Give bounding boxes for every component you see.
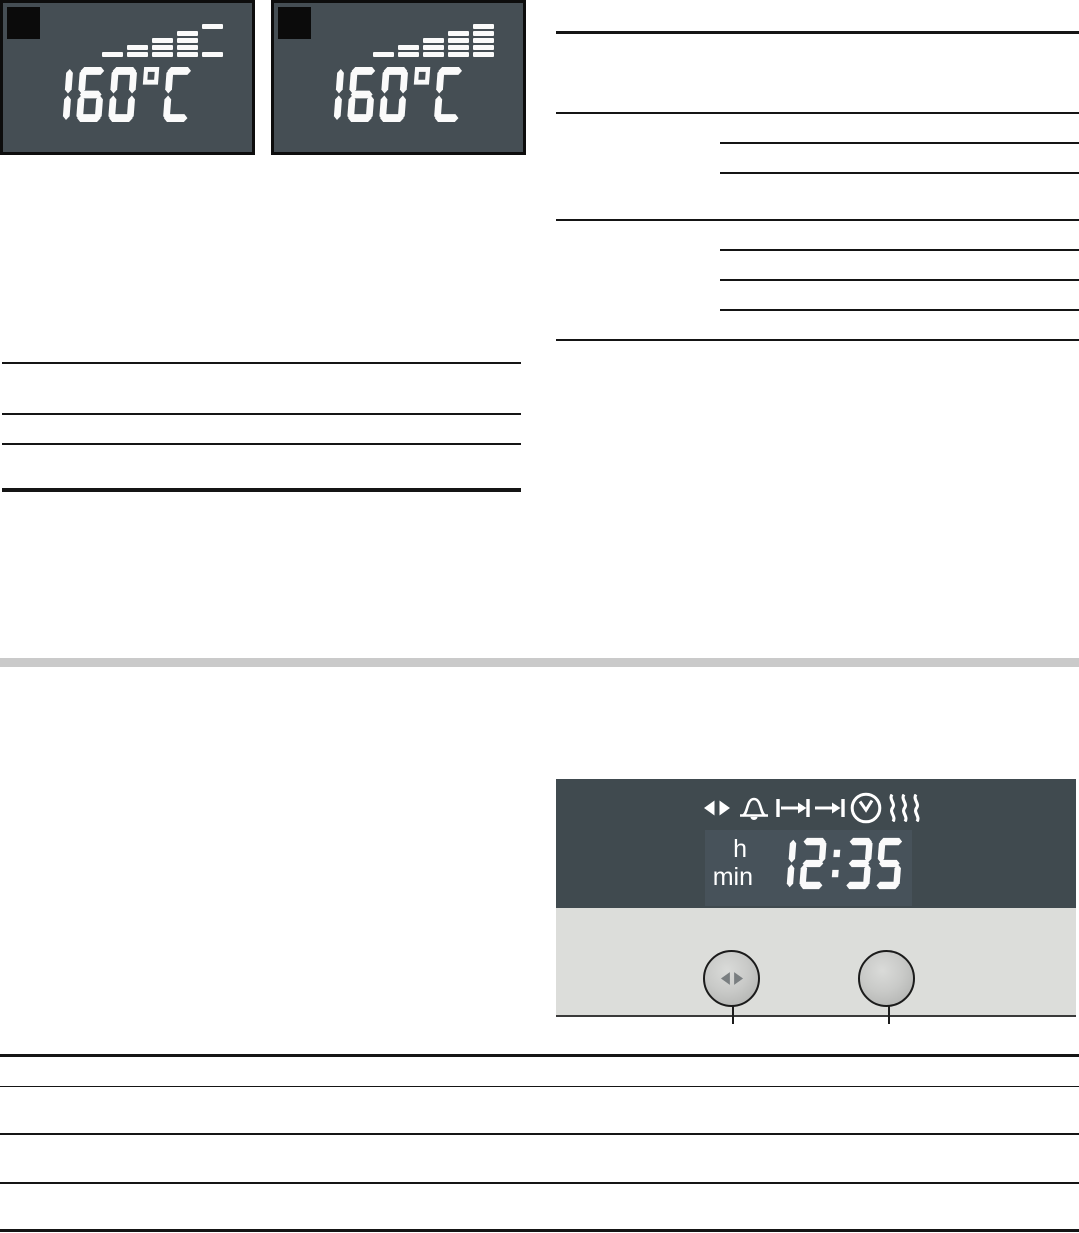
table-rule-top — [556, 31, 1079, 34]
display-icon-row — [702, 790, 923, 826]
select-arrows-icon — [718, 970, 746, 987]
heat-bar — [448, 45, 469, 50]
table-rule-top — [0, 1054, 1079, 1057]
table-rule-bottom — [0, 1229, 1079, 1232]
heat-bar — [102, 52, 123, 57]
heat-bar — [423, 38, 444, 43]
table-rule-inner — [720, 172, 1079, 174]
section-divider — [0, 658, 1079, 667]
heat-bar — [373, 52, 394, 57]
table-rule-inner — [720, 249, 1079, 251]
table-rule — [2, 362, 521, 364]
heat-bar — [423, 45, 444, 50]
table-rule — [556, 112, 1079, 114]
heat-bar — [177, 52, 198, 57]
heat-bar — [177, 38, 198, 43]
table-rule — [556, 219, 1079, 221]
time-readout — [768, 837, 904, 890]
heat-bar — [448, 31, 469, 36]
heat-waves-icon — [887, 794, 923, 822]
timer-bell-icon — [737, 795, 771, 821]
end-time-icon — [815, 799, 845, 817]
lcd-display-heating-up — [0, 0, 255, 155]
heat-bar — [398, 52, 419, 57]
hour-label: h — [707, 836, 753, 863]
temperature-readout — [43, 66, 193, 123]
table-rule-inner — [720, 279, 1079, 281]
heat-bar — [473, 24, 494, 29]
time-display-area: h min — [705, 830, 912, 906]
table-rule-bottom — [2, 488, 521, 492]
table-rule-bottom — [556, 339, 1079, 341]
heat-bar — [448, 38, 469, 43]
heat-bar — [177, 31, 198, 36]
table-rule — [0, 1182, 1079, 1184]
corner-marker — [7, 7, 40, 39]
corner-marker — [278, 7, 311, 39]
table-rule-inner — [720, 142, 1079, 144]
time-unit-labels: h min — [707, 836, 753, 892]
heat-bar — [152, 38, 173, 43]
clock-control-panel: h min — [556, 779, 1076, 1017]
heat-bar — [127, 45, 148, 50]
manual-page: h min — [0, 0, 1079, 1233]
minute-label: min — [707, 863, 753, 892]
heat-bar — [152, 52, 173, 57]
table-rule — [0, 1086, 1079, 1087]
callout-line-left — [732, 1005, 734, 1024]
heat-bar — [448, 52, 469, 57]
plain-button[interactable] — [858, 950, 915, 1007]
select-arrows-icon — [702, 798, 732, 818]
heat-bar — [473, 31, 494, 36]
table-rule-inner — [720, 309, 1079, 311]
clock-icon — [850, 792, 882, 824]
heat-bar — [473, 38, 494, 43]
heat-bar — [127, 52, 148, 57]
heat-bar — [202, 24, 223, 29]
lcd-display-fully-heated — [271, 0, 526, 155]
panel-button-area — [556, 908, 1076, 1017]
heat-bar — [152, 45, 173, 50]
table-rule — [0, 1133, 1079, 1135]
heat-bar — [398, 45, 419, 50]
temperature-readout — [314, 66, 464, 123]
heat-bar — [423, 52, 444, 57]
heat-bar — [202, 52, 223, 57]
heat-bar — [473, 45, 494, 50]
select-button[interactable] — [703, 950, 760, 1007]
table-rule — [2, 443, 521, 445]
heat-bar — [473, 52, 494, 57]
panel-display: h min — [556, 779, 1076, 908]
table-rule — [2, 413, 521, 415]
heat-bar — [177, 45, 198, 50]
callout-line-right — [888, 1005, 890, 1024]
cooking-time-icon — [776, 799, 810, 817]
